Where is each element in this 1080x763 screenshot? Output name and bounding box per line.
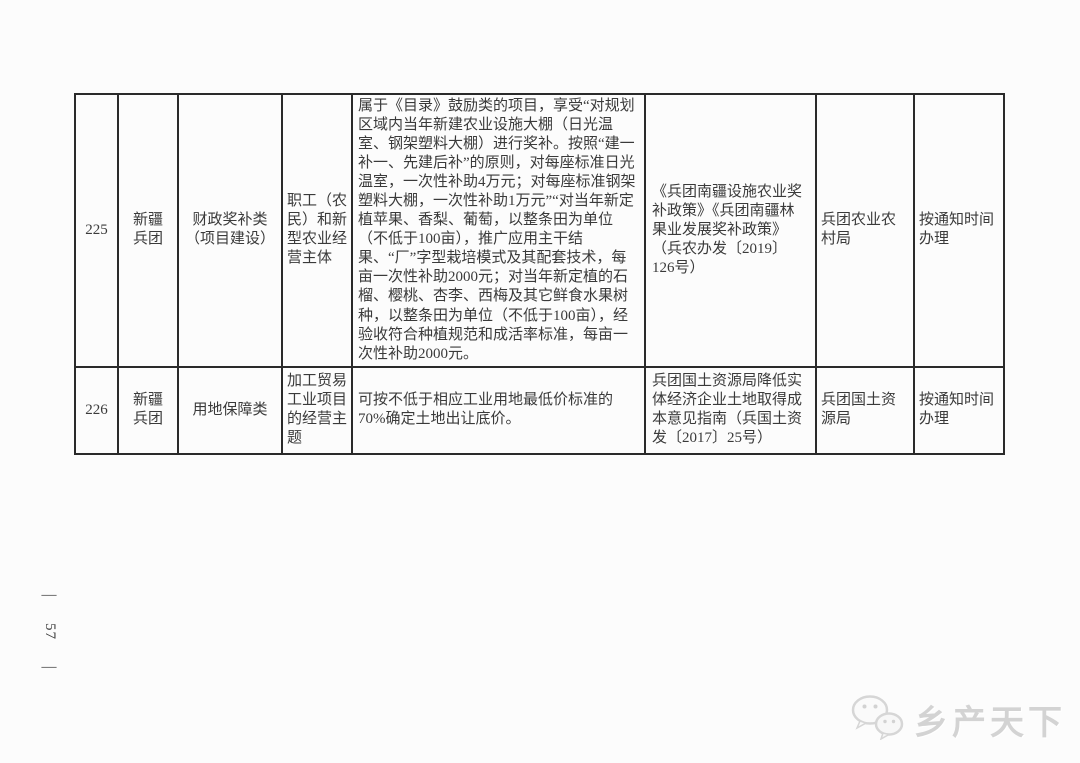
- table-row: 225 新疆兵团 财政奖补类（项目建设） 职工（农民）和新型农业经营主体 属于《…: [75, 94, 1004, 367]
- policy-table: 225 新疆兵团 财政奖补类（项目建设） 职工（农民）和新型农业经营主体 属于《…: [74, 93, 1005, 455]
- cell-department: 兵团农业农村局: [816, 94, 914, 367]
- cell-subject: 加工贸易工业项目的经营主题: [282, 367, 352, 454]
- cell-policy: 《兵团南疆设施农业奖补政策》《兵团南疆林果业发展奖补政策》（兵农办发〔2019〕…: [645, 94, 816, 367]
- cell-timing: 按通知时间办理: [914, 367, 1004, 454]
- cell-policy: 兵团国土资源局降低实体经济企业土地取得成本意见指南（兵国土资发〔2017〕25号…: [645, 367, 816, 454]
- cell-serial: 225: [75, 94, 118, 367]
- cell-detail: 属于《目录》鼓励类的项目，享受“对规划区域内当年新建农业设施大棚（日光温室、钢架…: [352, 94, 645, 367]
- cell-subject: 职工（农民）和新型农业经营主体: [282, 94, 352, 367]
- cell-category: 用地保障类: [178, 367, 282, 454]
- page-number-dash-top: —: [42, 590, 57, 600]
- watermark-text: 乡产天下: [914, 695, 1066, 744]
- wechat-chat-bubbles-icon: [850, 694, 904, 745]
- cell-timing: 按通知时间办理: [914, 94, 1004, 367]
- cell-region: 新疆兵团: [118, 94, 178, 367]
- cell-category: 财政奖补类（项目建设）: [178, 94, 282, 367]
- cell-department: 兵团国土资源局: [816, 367, 914, 454]
- cell-region: 新疆兵团: [118, 367, 178, 454]
- table-row: 226 新疆兵团 用地保障类 加工贸易工业项目的经营主题 可按不低于相应工业用地…: [75, 367, 1004, 454]
- cell-detail: 可按不低于相应工业用地最低价标准的70%确定土地出让底价。: [352, 367, 645, 454]
- page-number: — 57 —: [36, 590, 62, 672]
- page-number-value: 57: [41, 623, 58, 640]
- page-number-dash-bottom: —: [42, 662, 57, 672]
- cell-serial: 226: [75, 367, 118, 454]
- watermark: 乡产天下: [850, 694, 1066, 745]
